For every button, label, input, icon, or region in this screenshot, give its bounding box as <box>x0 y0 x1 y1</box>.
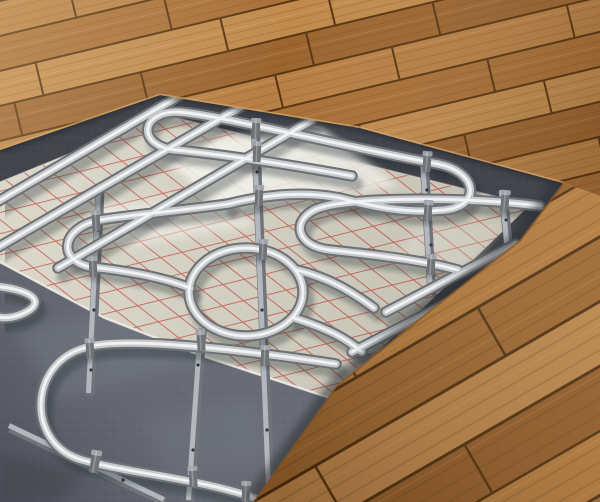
underfloor-heating-render <box>0 0 600 502</box>
underfloor-heating-3d-render <box>0 0 600 502</box>
